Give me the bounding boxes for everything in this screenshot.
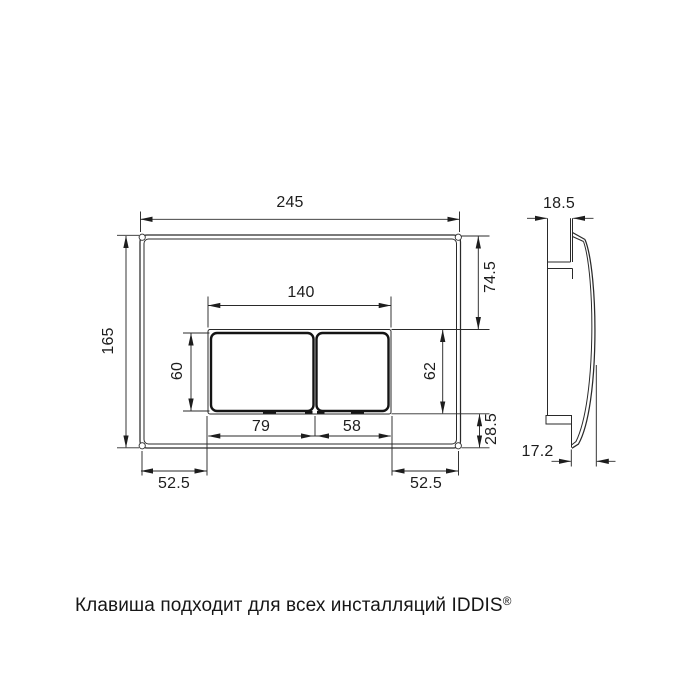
dim-large-button-width-label: 79 [252, 418, 270, 436]
dim-top-to-opening-label: 74.5 [482, 261, 500, 293]
dim-button-widths-lines [208, 416, 390, 439]
dim-plate-width-lines [141, 212, 460, 233]
corner-screw-top-left [139, 234, 145, 240]
dim-bottom-left-margin-lines [141, 416, 207, 476]
dim-bottom-right-margin-lines [392, 416, 459, 476]
flush-plate-side-view [546, 218, 595, 448]
dim-plate-height-lines [117, 235, 139, 447]
divider-arrow-right [317, 433, 329, 438]
dim-side-depth-top-label: 18.5 [543, 195, 575, 213]
dim-opening-to-bottom-label: 28.5 [483, 413, 501, 445]
dim-button-height-label: 60 [169, 361, 187, 379]
flush-plate-front-view [139, 234, 461, 449]
registered-trademark-symbol: ® [503, 595, 512, 608]
dim-plate-height-label: 165 [100, 327, 118, 354]
dim-side-depth-bottom-label: 17.2 [522, 443, 554, 461]
corner-screw-bottom-left [139, 443, 145, 449]
caption-text: Клавиша подходит для всех инсталляций ID… [75, 595, 503, 616]
corner-screw-bottom-right [455, 443, 461, 449]
dim-opening-height-label: 62 [422, 362, 440, 380]
dim-top-to-opening-lines [392, 236, 490, 330]
compatibility-caption: Клавиша подходит для всех инсталляций ID… [75, 595, 511, 617]
large-flush-button [211, 333, 314, 411]
dim-small-button-width-label: 58 [343, 418, 361, 436]
side-view-bottom-lip [546, 416, 572, 425]
dim-bottom-right-margin-label: 52.5 [410, 475, 442, 493]
technical-drawing-page: 245 165 140 74.5 60 62 79 58 28.5 52.5 5… [0, 0, 700, 700]
corner-screw-top-right [455, 234, 461, 240]
dim-plate-width-label: 245 [276, 194, 303, 212]
dim-bottom-left-margin-label: 52.5 [158, 475, 190, 493]
dim-opening-height-lines [392, 330, 490, 414]
side-view-inner-curve [572, 242, 592, 446]
small-flush-button [317, 333, 389, 411]
divider-arrow-left [301, 433, 313, 438]
dim-opening-width-label: 140 [287, 284, 314, 302]
